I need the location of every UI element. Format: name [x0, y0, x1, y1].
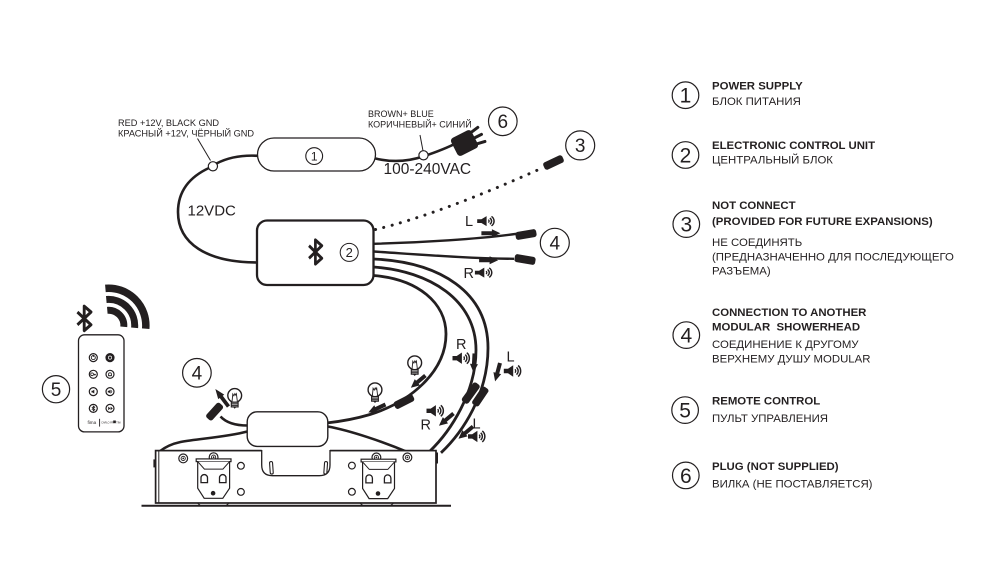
svg-text:НЕ СОЕДИНЯТЬ: НЕ СОЕДИНЯТЬ [712, 237, 802, 249]
svg-text:ВЕРХНЕМУ ДУШУ MODULAR: ВЕРХНЕМУ ДУШУ MODULAR [712, 354, 870, 366]
svg-text:R: R [421, 418, 431, 434]
svg-text:POWER SUPPLY: POWER SUPPLY [712, 81, 803, 93]
svg-text:L: L [507, 350, 515, 366]
svg-text:1: 1 [311, 149, 318, 163]
svg-text:1: 1 [680, 85, 692, 108]
svg-text:РАЗЪЕМА): РАЗЪЕМА) [712, 266, 771, 278]
svg-text:CONNECTION TO ANOTHER: CONNECTION TO ANOTHER [712, 307, 866, 319]
svg-text:СОЕДИНЕНИЕ К ДРУГОМУ: СОЕДИНЕНИЕ К ДРУГОМУ [712, 339, 859, 351]
svg-text:100-240VAC: 100-240VAC [384, 161, 472, 178]
svg-text:REMOTE CONTROL: REMOTE CONTROL [712, 395, 820, 407]
svg-text:PLUG (NOT SUPPLIED): PLUG (NOT SUPPLIED) [712, 461, 839, 473]
svg-text:КОРИЧНЕВЫЙ+ СИНИЙ: КОРИЧНЕВЫЙ+ СИНИЙ [368, 119, 472, 130]
svg-text:БЛОК ПИТАНИЯ: БЛОК ПИТАНИЯ [712, 96, 801, 108]
svg-text:5: 5 [679, 400, 691, 423]
svg-text:(ПРЕДНАЗНАЧЕННО ДЛЯ ПОСЛЕДУЮЩЕ: (ПРЕДНАЗНАЧЕННО ДЛЯ ПОСЛЕДУЮЩЕГО [712, 251, 954, 263]
svg-text:ПУЛЬТ УПРАВЛЕНИЯ: ПУЛЬТ УПРАВЛЕНИЯ [712, 413, 828, 425]
svg-text:fima: fima [88, 420, 97, 425]
svg-text:NOT CONNECT: NOT CONNECT [712, 200, 796, 212]
svg-text:R: R [464, 266, 474, 282]
svg-text:ELECTRONIC CONTROL UNIT: ELECTRONIC CONTROL UNIT [712, 140, 875, 152]
svg-text:6: 6 [498, 112, 509, 133]
svg-text:3: 3 [680, 214, 692, 237]
svg-text:ЦЕНТРАЛЬНЫЙ БЛОК: ЦЕНТРАЛЬНЫЙ БЛОК [712, 153, 833, 166]
svg-text:2: 2 [680, 144, 692, 167]
svg-text:(PROVIDED FOR FUTURE EXPANSION: (PROVIDED FOR FUTURE EXPANSIONS) [712, 216, 933, 228]
svg-text:5: 5 [51, 380, 62, 401]
svg-text:4: 4 [550, 234, 561, 255]
svg-text:RED +12V, BLACK GND: RED +12V, BLACK GND [118, 118, 219, 128]
svg-text:BROWN+ BLUE: BROWN+ BLUE [368, 109, 434, 119]
svg-text:6: 6 [680, 465, 692, 488]
svg-text:R: R [456, 337, 466, 353]
svg-text:MODULAR SHOWERHEAD: MODULAR SHOWERHEAD [712, 322, 860, 334]
svg-text:ВИЛКА (НЕ ПОСТАВЛЯЕТСЯ): ВИЛКА (НЕ ПОСТАВЛЯЕТСЯ) [712, 478, 873, 490]
svg-text:CARLO FRATTINI: CARLO FRATTINI [101, 421, 121, 424]
svg-text:3: 3 [575, 136, 586, 157]
svg-text:4: 4 [680, 325, 692, 348]
svg-text:КРАСНЫЙ +12V, ЧЁРНЫЙ GND: КРАСНЫЙ +12V, ЧЁРНЫЙ GND [118, 128, 254, 139]
svg-text:2: 2 [346, 245, 353, 260]
svg-text:12VDC: 12VDC [188, 203, 237, 220]
svg-text:L: L [465, 214, 473, 230]
svg-text:4: 4 [192, 364, 203, 385]
svg-text:L: L [473, 417, 481, 433]
